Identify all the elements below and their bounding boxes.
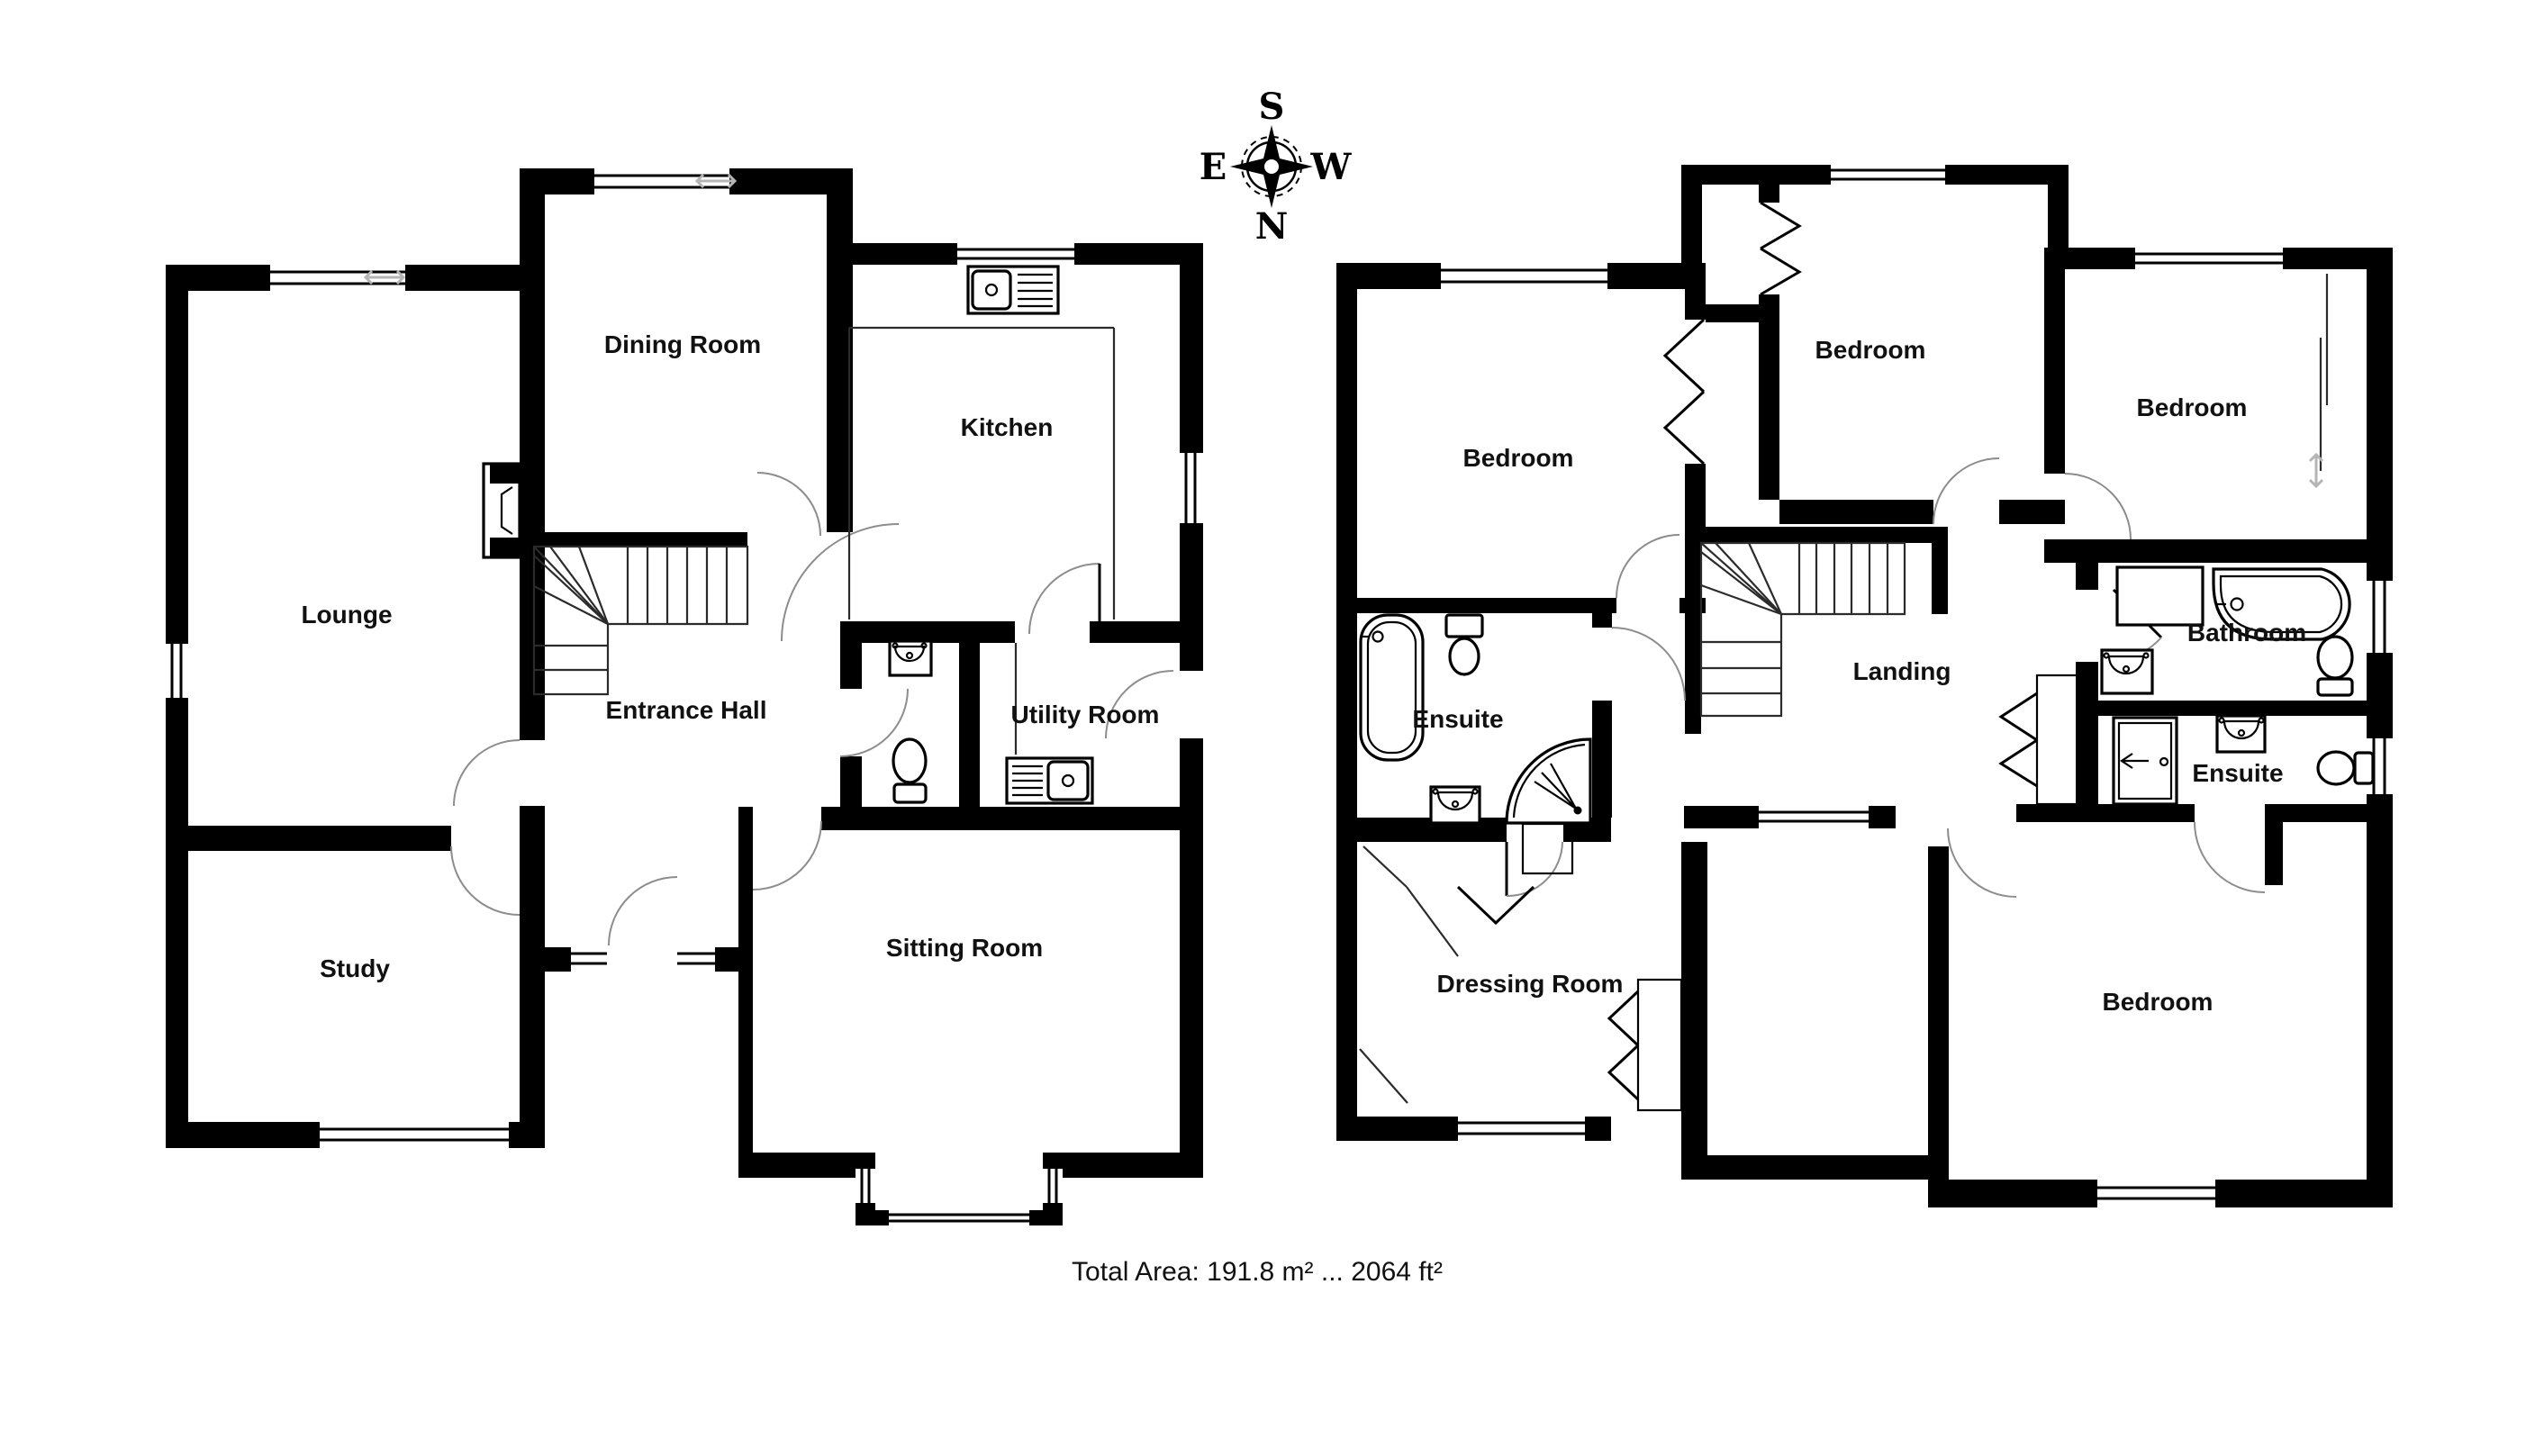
room-label-bedroom-4: Bedroom (2103, 988, 2214, 1016)
basin-icon (2102, 650, 2152, 693)
room-label-bedroom-2: Bedroom (1815, 336, 1926, 364)
staircase (534, 547, 747, 694)
room-label-bedroom-1: Bedroom (1463, 444, 1574, 472)
room-label-utility-room: Utility Room (1011, 701, 1160, 728)
basin-icon (2217, 716, 2265, 752)
first-floor-plan: Bedroom Bedroom Bedroom Ensuite Bathroom… (1336, 165, 2393, 1207)
floorplan-drawing: Lounge Dining Room Kitchen Entrance Hall… (0, 0, 2544, 1456)
first-floor-walls (1336, 165, 2393, 1207)
room-label-study: Study (320, 954, 390, 982)
compass-letter-south: S (1259, 86, 1285, 128)
room-label-dining-room: Dining Room (604, 330, 761, 358)
total-area-text: Total Area: 191.8 m² ... 2064 ft² (1072, 1257, 1443, 1287)
room-label-kitchen: Kitchen (961, 413, 1054, 441)
compass-letter-west: W (1310, 146, 1353, 188)
room-label-ensuite-2: Ensuite (2192, 759, 2283, 787)
room-label-bedroom-3: Bedroom (2137, 393, 2248, 421)
basin-icon (1431, 787, 1480, 823)
staircase (1701, 543, 1905, 716)
toilet-icon (1446, 615, 1482, 674)
room-label-bathroom: Bathroom (2187, 619, 2306, 647)
toilet-icon (2318, 637, 2352, 695)
fireplace-icon (484, 464, 520, 557)
dressing-room-wardrobes-icon (1360, 824, 1681, 1110)
floorplan-page: Lounge Dining Room Kitchen Entrance Hall… (0, 0, 2544, 1456)
wc-toilet-icon (893, 739, 926, 802)
compass-letter-north: N (1255, 205, 1289, 248)
room-label-ensuite-1: Ensuite (1412, 705, 1503, 733)
room-label-sitting-room: Sitting Room (886, 934, 1043, 962)
compass-rose-icon: S N E W (1200, 86, 1353, 248)
utility-sink-icon (1007, 758, 1092, 803)
room-label-landing: Landing (1853, 657, 1951, 685)
first-floor-windows (1441, 165, 2393, 1207)
room-label-dressing-room: Dressing Room (1437, 970, 1624, 998)
corner-shower-icon (1507, 739, 1590, 823)
wc-basin-icon (890, 641, 931, 675)
ground-floor-plan: Lounge Dining Room Kitchen Entrance Hall… (166, 168, 1203, 1225)
shower-cubicle-icon (2114, 718, 2177, 804)
room-label-lounge: Lounge (301, 601, 392, 629)
kitchen-sink-icon (968, 267, 1058, 313)
toilet-icon (2318, 752, 2373, 784)
compass-letter-east: E (1200, 146, 1227, 188)
kitchen-counter (849, 328, 1114, 619)
built-in-wardrobe-icon (2310, 274, 2327, 486)
shower-cubicle-icon (2117, 567, 2203, 625)
room-label-entrance-hall: Entrance Hall (606, 696, 767, 724)
bath-icon (1361, 615, 1423, 760)
